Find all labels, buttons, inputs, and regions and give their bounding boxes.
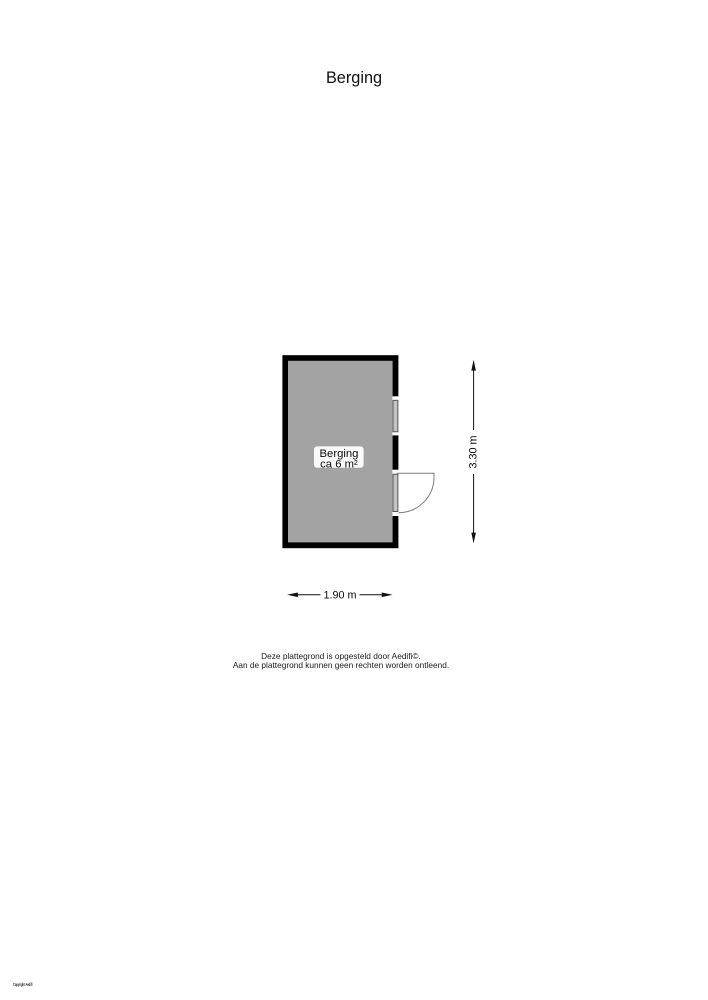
svg-text:ca 6 m²: ca 6 m²	[320, 458, 358, 470]
svg-text:3.30 m: 3.30 m	[467, 435, 479, 468]
svg-text:1.90 m: 1.90 m	[323, 589, 356, 601]
